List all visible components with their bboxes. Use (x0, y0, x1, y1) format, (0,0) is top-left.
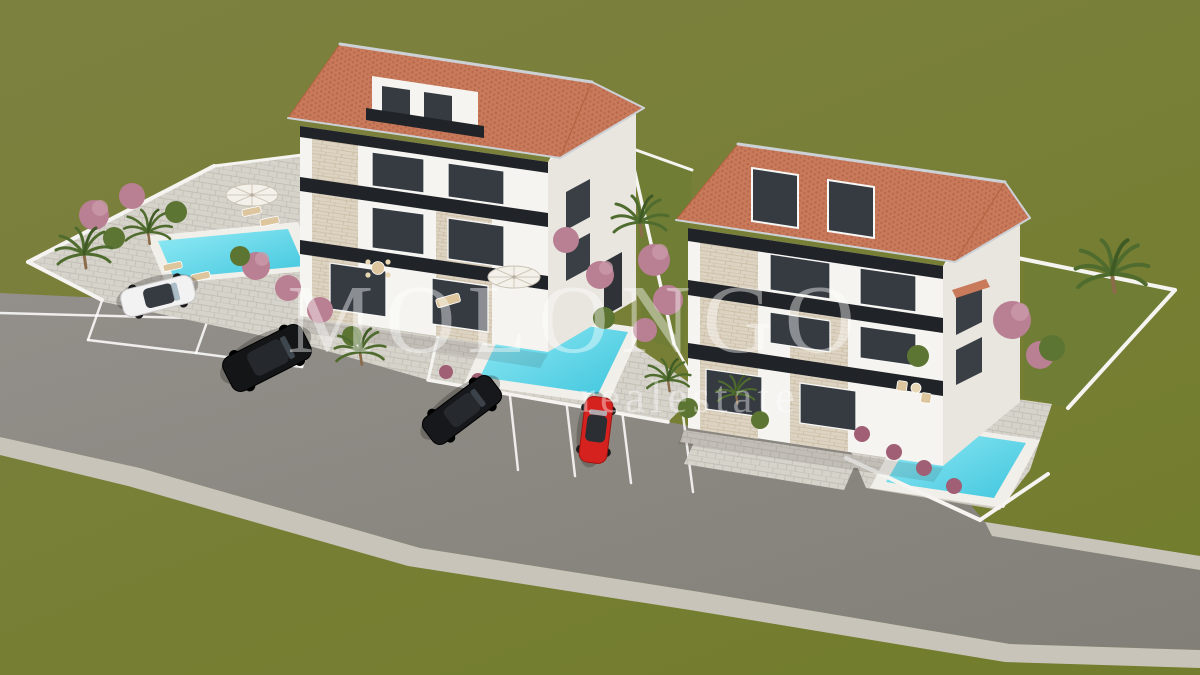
watermark-tagline: realestate (580, 372, 800, 422)
scene-canvas: MOLONGO realestate (0, 0, 1200, 675)
parasol (226, 184, 278, 206)
render-scene: MOLONGO realestate (0, 0, 1200, 675)
watermark-brand: MOLONGO (287, 266, 867, 373)
